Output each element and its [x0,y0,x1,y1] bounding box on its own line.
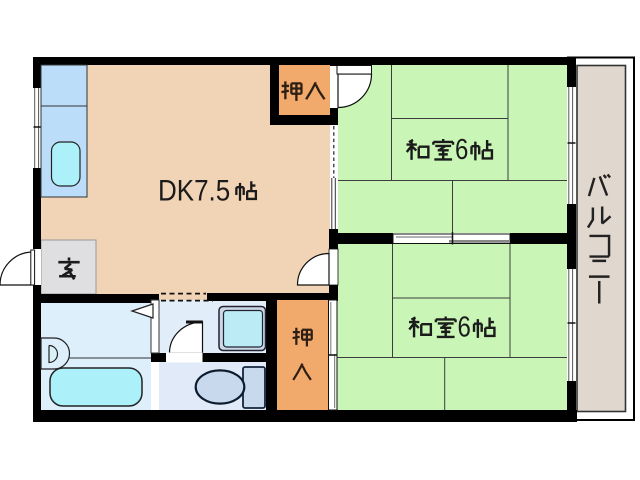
svg-text:6: 6 [455,133,468,166]
svg-text:DK7.5: DK7.5 [158,174,230,207]
svg-text:6: 6 [458,310,471,343]
